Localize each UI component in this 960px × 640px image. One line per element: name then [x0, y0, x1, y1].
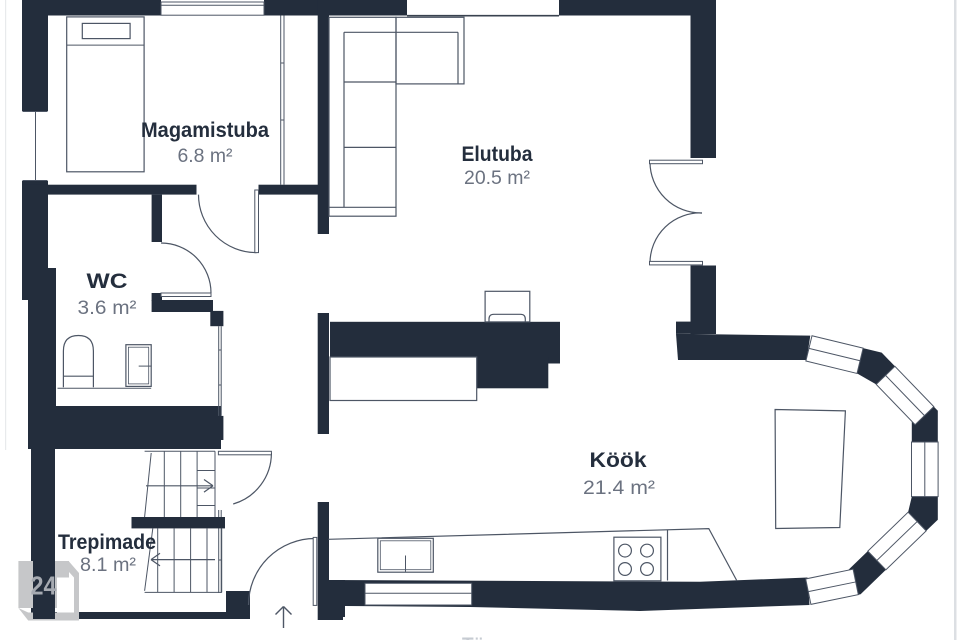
svg-text:20.5 m²: 20.5 m²	[464, 168, 530, 189]
svg-text:3.6 m²: 3.6 m²	[78, 298, 137, 319]
svg-text:Trepimade: Trepimade	[58, 531, 156, 554]
svg-text:6.8 m²: 6.8 m²	[178, 146, 233, 167]
svg-text:8.1 m²: 8.1 m²	[80, 555, 136, 576]
svg-text:24: 24	[31, 571, 57, 601]
svg-text:Magamistuba: Magamistuba	[141, 119, 269, 142]
svg-text:Tänav: Tänav	[462, 635, 517, 640]
svg-text:WC: WC	[87, 270, 128, 293]
svg-text:Köök: Köök	[590, 449, 647, 472]
svg-text:Elutuba: Elutuba	[462, 143, 533, 166]
svg-text:21.4 m²: 21.4 m²	[583, 478, 655, 499]
